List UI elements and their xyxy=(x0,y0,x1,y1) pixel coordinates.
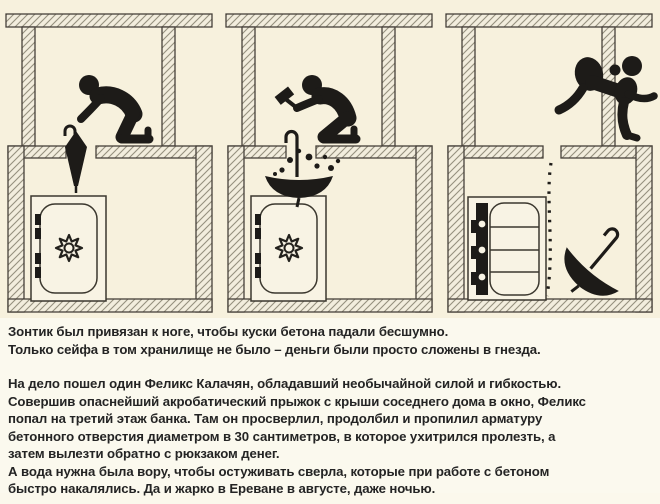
comic-panel-2 xyxy=(220,0,440,318)
story-paragraph-1: Зонтик был привязан к ноге, чтобы куски … xyxy=(8,323,652,358)
hammer-icon xyxy=(275,87,297,108)
locked-safe-icon xyxy=(251,196,326,301)
kneeling-burglar-icon xyxy=(79,75,149,139)
open-safe-with-shelves-icon xyxy=(468,197,546,300)
story-text: Зонтик был привязан к ноге, чтобы куски … xyxy=(0,318,660,493)
comic-panel-3 xyxy=(440,0,660,318)
locked-safe-icon xyxy=(31,196,106,301)
story-paragraph-3: А вода нужна была вору, чтобы остуживать… xyxy=(8,463,652,498)
closed-umbrella-icon xyxy=(65,126,87,193)
story-paragraph-2: На дело пошел один Феликс Калачян, облад… xyxy=(8,375,652,463)
dotted-descent-path xyxy=(547,163,551,296)
comic-strip xyxy=(0,0,660,318)
comic-panel-1 xyxy=(0,0,220,318)
kneeling-burglar-icon xyxy=(275,75,356,139)
